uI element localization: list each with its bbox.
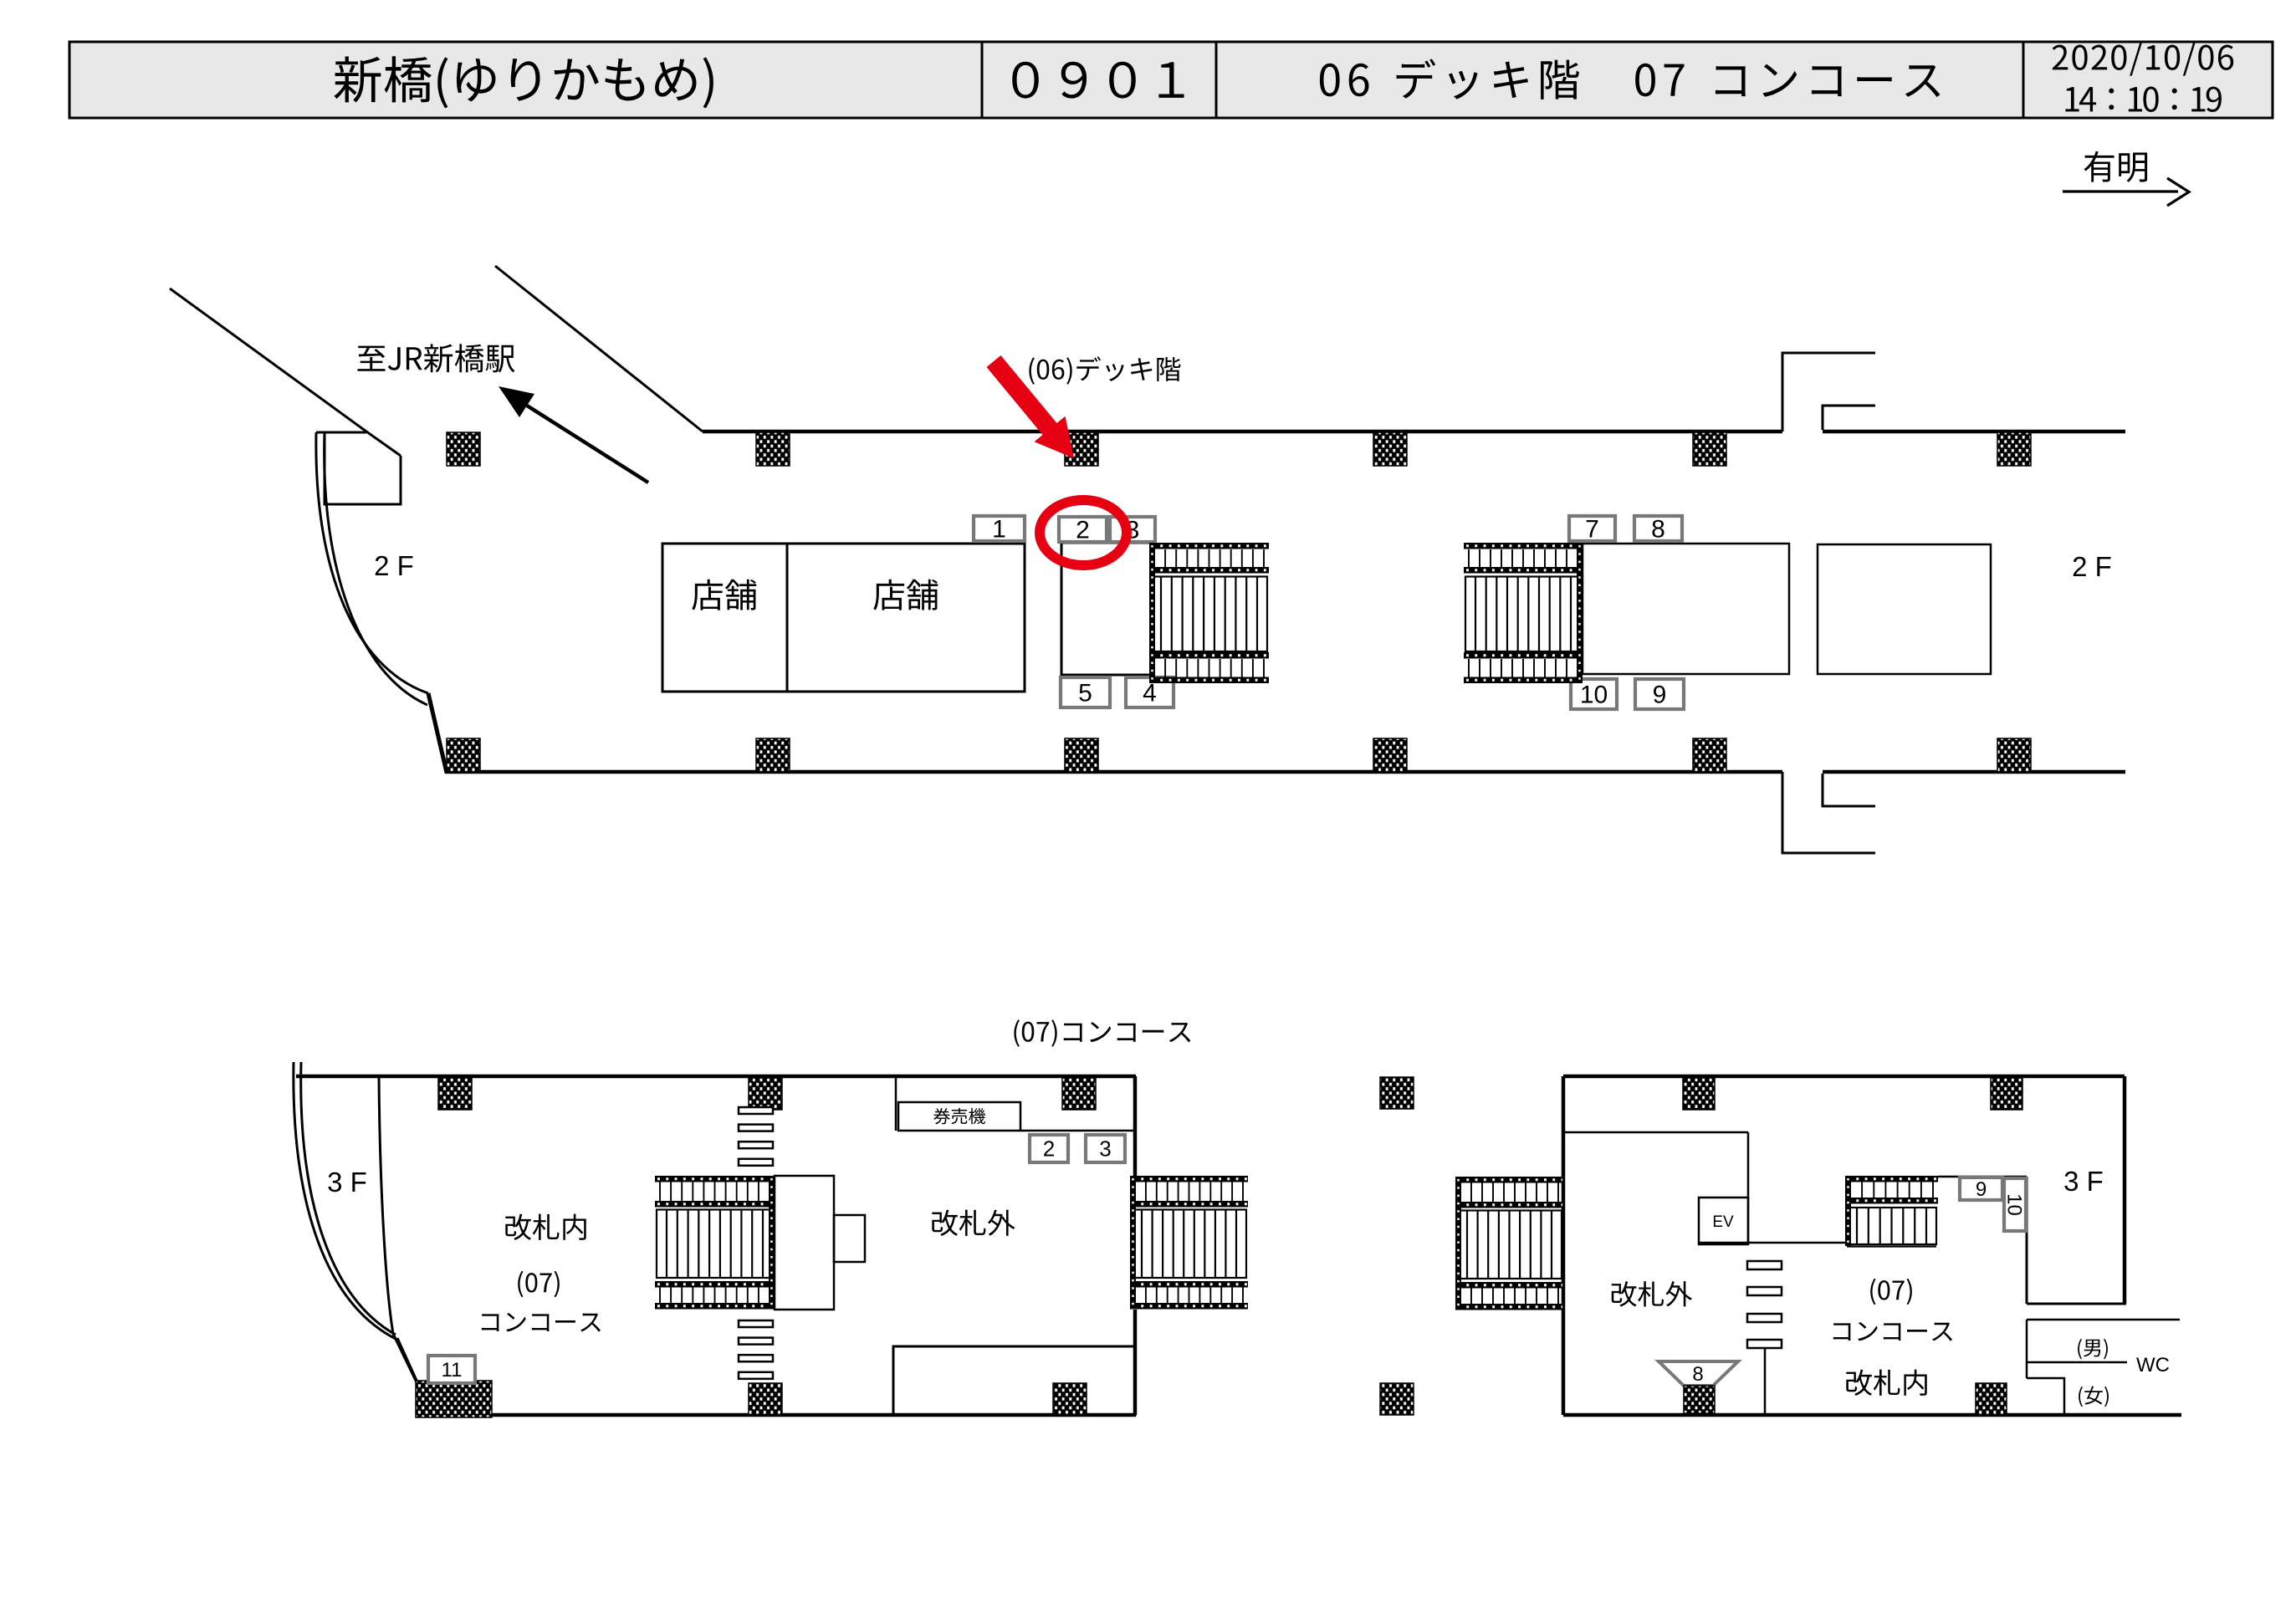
svg-text:11: 11 <box>442 1359 463 1381</box>
svg-text:5: 5 <box>1078 680 1092 707</box>
svg-text:7: 7 <box>1585 516 1599 544</box>
svg-text:2: 2 <box>1076 517 1090 544</box>
svg-text:2: 2 <box>1043 1136 1055 1162</box>
svg-text:3 F: 3 F <box>2063 1166 2104 1197</box>
svg-text:10: 10 <box>2003 1193 2026 1216</box>
svg-text:1: 1 <box>992 516 1006 544</box>
svg-text:3: 3 <box>1099 1136 1111 1162</box>
svg-text:WC: WC <box>2136 1354 2170 1376</box>
svg-text:2 F: 2 F <box>374 550 414 581</box>
svg-text:3 F: 3 F <box>327 1167 367 1198</box>
svg-text:8: 8 <box>1651 516 1665 544</box>
svg-text:9: 9 <box>1653 682 1667 709</box>
svg-text:9: 9 <box>1976 1178 1987 1201</box>
svg-text:2 F: 2 F <box>2072 551 2112 582</box>
svg-text:4: 4 <box>1143 680 1157 707</box>
svg-text:8: 8 <box>1692 1363 1703 1386</box>
svg-text:10: 10 <box>1580 682 1608 709</box>
svg-text:EV: EV <box>1712 1213 1734 1231</box>
